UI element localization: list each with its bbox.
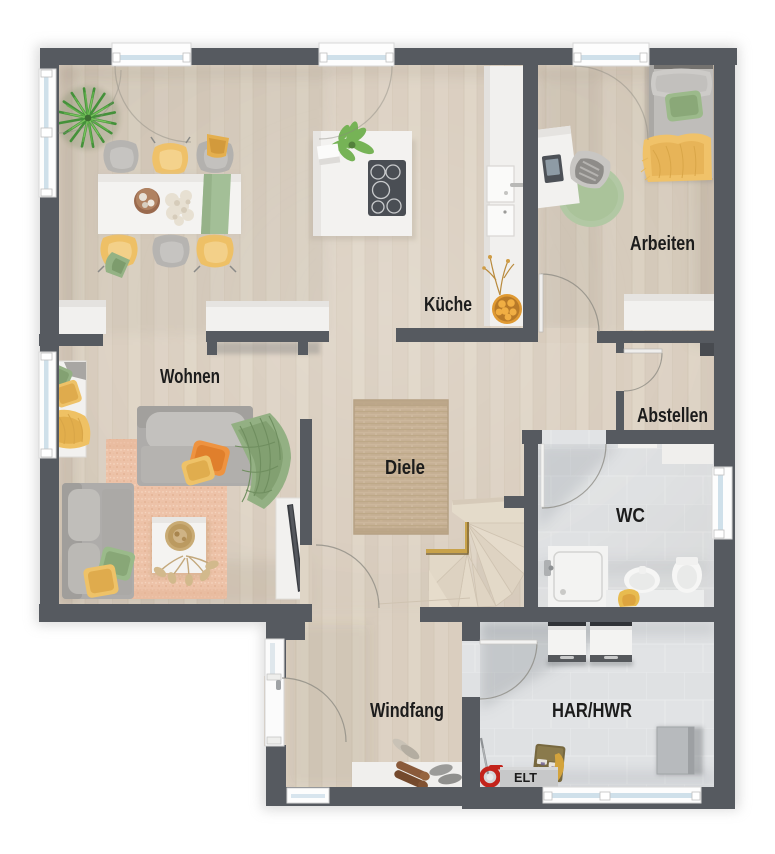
svg-text:Diele: Diele: [385, 457, 425, 479]
svg-text:Arbeiten: Arbeiten: [630, 233, 695, 255]
svg-text:WC: WC: [616, 505, 645, 527]
svg-text:HAR/HWR: HAR/HWR: [552, 700, 632, 722]
svg-text:Küche: Küche: [424, 294, 472, 316]
svg-text:Wohnen: Wohnen: [160, 366, 220, 388]
svg-text:Abstellen: Abstellen: [637, 405, 708, 427]
svg-text:Windfang: Windfang: [370, 700, 444, 722]
svg-text:ELT: ELT: [514, 771, 537, 785]
